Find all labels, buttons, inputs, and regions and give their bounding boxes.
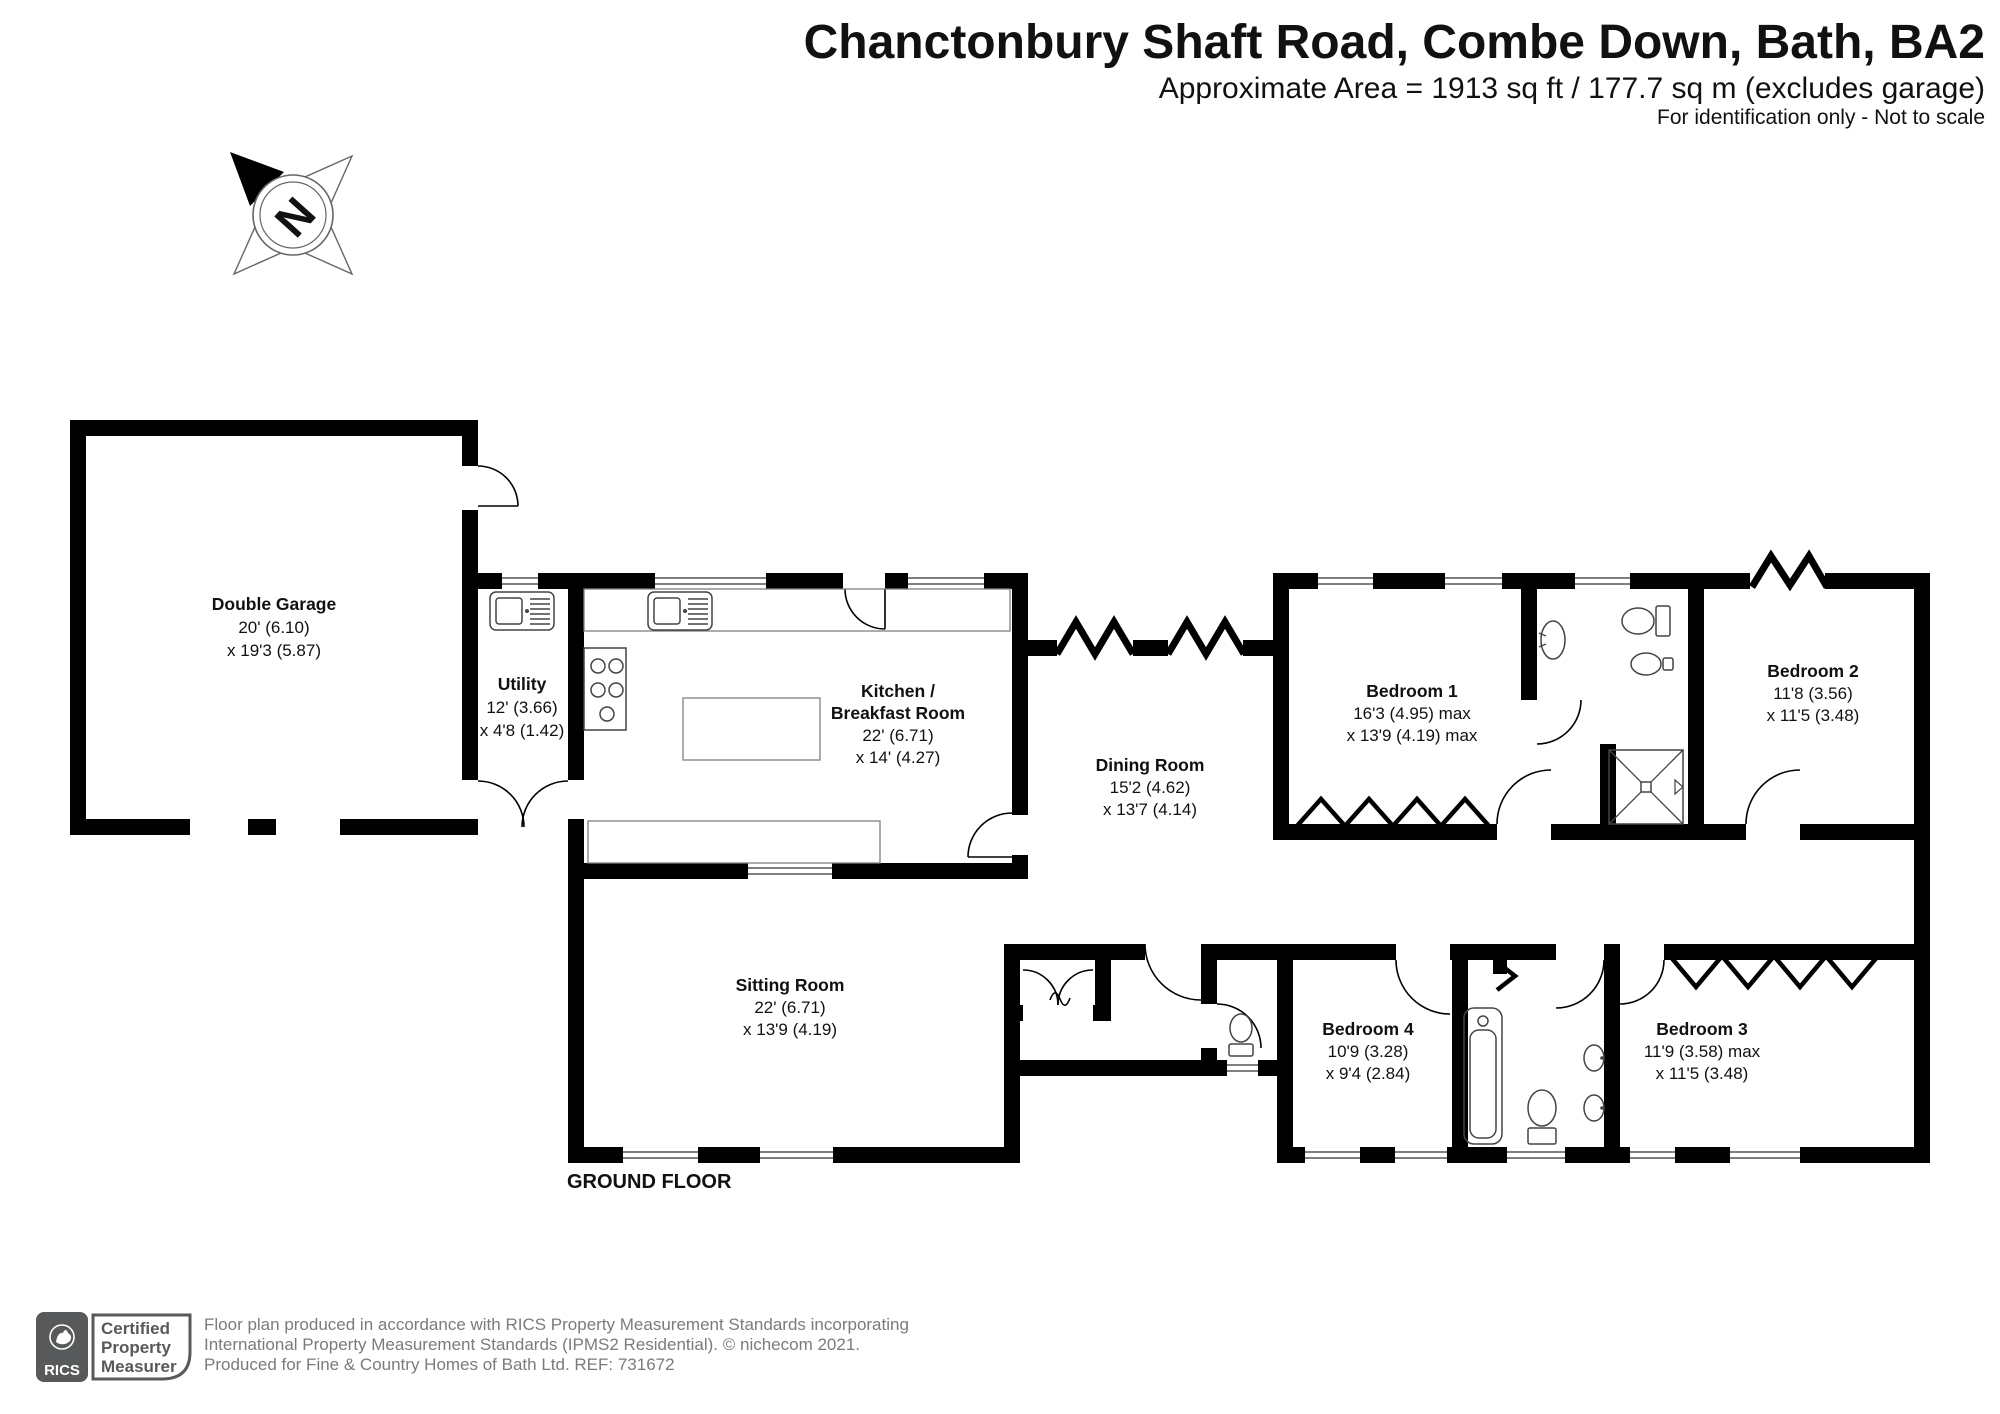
svg-text:x 4'8 (1.42): x 4'8 (1.42) <box>480 721 565 740</box>
window <box>1318 573 1373 589</box>
wc-toilet-icon <box>1229 1014 1253 1056</box>
svg-text:Dining Room: Dining Room <box>1096 755 1205 775</box>
svg-text:Bedroom 3: Bedroom 3 <box>1656 1019 1748 1039</box>
svg-text:12' (3.66): 12' (3.66) <box>486 698 557 717</box>
svg-text:Bedroom 1: Bedroom 1 <box>1366 681 1458 701</box>
svg-text:15'2 (4.62): 15'2 (4.62) <box>1110 778 1191 797</box>
scale-note: For identification only - Not to scale <box>1657 106 1985 129</box>
footer-line2: International Property Measurement Stand… <box>204 1335 860 1354</box>
rics-brand-text: RICS <box>44 1362 80 1379</box>
room-label-bedroom4: Bedroom 4 10'9 (3.28) x 9'4 (2.84) <box>1322 1019 1414 1083</box>
svg-text:20' (6.10): 20' (6.10) <box>238 618 309 637</box>
floor-label: GROUND FLOOR <box>567 1171 732 1193</box>
hob-icon <box>584 648 626 730</box>
footer: RICS Certified Property Measurer Floor p… <box>36 1312 909 1382</box>
approximate-area: Approximate Area = 1913 sq ft / 177.7 sq… <box>1159 72 1985 105</box>
svg-text:x 11'5 (3.48): x 11'5 (3.48) <box>1767 706 1860 725</box>
window <box>760 1147 833 1163</box>
svg-text:Sitting Room: Sitting Room <box>736 975 845 995</box>
kitchen-sink-icon <box>648 592 712 630</box>
wardrobe-zigzag <box>1297 799 1489 826</box>
svg-text:Kitchen /: Kitchen / <box>861 681 935 701</box>
room-label-dining: Dining Room 15'2 (4.62) x 13'7 (4.14) <box>1096 755 1205 819</box>
wardrobe-zigzag <box>1670 956 1878 987</box>
svg-text:x 11'5 (3.48): x 11'5 (3.48) <box>1656 1064 1749 1083</box>
svg-text:Bedroom 2: Bedroom 2 <box>1767 661 1859 681</box>
shower-icon <box>1609 750 1683 824</box>
svg-text:Bedroom 4: Bedroom 4 <box>1322 1019 1414 1039</box>
window <box>1630 1147 1675 1163</box>
window <box>655 573 766 589</box>
window <box>908 573 984 589</box>
window <box>1730 1147 1800 1163</box>
ensuite-toilet-icon <box>1622 606 1670 636</box>
svg-text:Double Garage: Double Garage <box>212 594 337 614</box>
svg-text:11'8 (3.56): 11'8 (3.56) <box>1773 684 1852 703</box>
cupboard-bifold <box>1497 962 1515 990</box>
room-label-bedroom3: Bedroom 3 11'9 (3.58) max x 11'5 (3.48) <box>1644 1019 1761 1083</box>
bidet-icon <box>1631 653 1673 675</box>
window <box>1445 573 1502 589</box>
svg-text:10'9 (3.28): 10'9 (3.28) <box>1328 1042 1409 1061</box>
window <box>748 863 832 879</box>
svg-text:Property: Property <box>101 1338 171 1357</box>
room-label-bedroom1: Bedroom 1 16'3 (4.95) max x 13'9 (4.19) … <box>1347 681 1478 745</box>
bathroom-basin-icon <box>1584 1045 1604 1121</box>
svg-text:Certified: Certified <box>101 1319 170 1338</box>
svg-text:x 13'9 (4.19): x 13'9 (4.19) <box>743 1020 837 1039</box>
bath-icon <box>1464 1008 1502 1144</box>
page-title: Chanctonbury Shaft Road, Combe Down, Bat… <box>804 16 1985 69</box>
footer-line3: Produced for Fine & Country Homes of Bat… <box>204 1355 675 1374</box>
svg-text:Utility: Utility <box>498 674 547 694</box>
header: Chanctonbury Shaft Road, Combe Down, Bat… <box>804 16 1985 129</box>
svg-text:22' (6.71): 22' (6.71) <box>754 998 825 1017</box>
utility-sink-icon <box>490 592 554 630</box>
ensuite-basin-icon <box>1539 621 1565 659</box>
kitchen-island <box>683 698 820 760</box>
certified-measurer-badge: Certified Property Measurer <box>93 1315 190 1379</box>
window <box>1507 1147 1565 1163</box>
svg-text:x 19'3 (5.87): x 19'3 (5.87) <box>227 641 321 660</box>
svg-text:22' (6.71): 22' (6.71) <box>862 726 933 745</box>
svg-text:x 13'9 (4.19) max: x 13'9 (4.19) max <box>1347 726 1478 745</box>
room-label-sitting: Sitting Room 22' (6.71) x 13'9 (4.19) <box>736 975 845 1039</box>
footer-line1: Floor plan produced in accordance with R… <box>204 1315 909 1334</box>
window <box>623 1147 698 1163</box>
compass-icon: N <box>230 152 352 274</box>
window <box>1227 1060 1258 1076</box>
floorplan-page: Chanctonbury Shaft Road, Combe Down, Bat… <box>0 0 2000 1414</box>
room-label-garage: Double Garage 20' (6.10) x 19'3 (5.87) <box>212 594 337 660</box>
room-label-utility: Utility 12' (3.66) x 4'8 (1.42) <box>480 674 565 740</box>
svg-text:Breakfast Room: Breakfast Room <box>831 703 965 723</box>
bathroom-toilet-icon <box>1528 1090 1556 1144</box>
window <box>502 573 538 589</box>
window <box>1575 573 1630 589</box>
svg-text:11'9 (3.58) max: 11'9 (3.58) max <box>1644 1042 1761 1061</box>
svg-text:Measurer: Measurer <box>101 1357 177 1376</box>
svg-text:x 13'7 (4.14): x 13'7 (4.14) <box>1103 800 1197 819</box>
window <box>1305 1147 1360 1163</box>
svg-text:x 14' (4.27): x 14' (4.27) <box>856 748 941 767</box>
window <box>1395 1147 1447 1163</box>
kitchen-counter <box>588 821 880 863</box>
room-label-bedroom2: Bedroom 2 11'8 (3.56) x 11'5 (3.48) <box>1767 661 1860 725</box>
svg-text:x 9'4 (2.84): x 9'4 (2.84) <box>1326 1064 1411 1083</box>
svg-text:16'3 (4.95) max: 16'3 (4.95) max <box>1353 704 1471 723</box>
rics-logo: RICS <box>36 1312 88 1382</box>
room-label-kitchen: Kitchen / Breakfast Room 22' (6.71) x 14… <box>831 681 965 767</box>
